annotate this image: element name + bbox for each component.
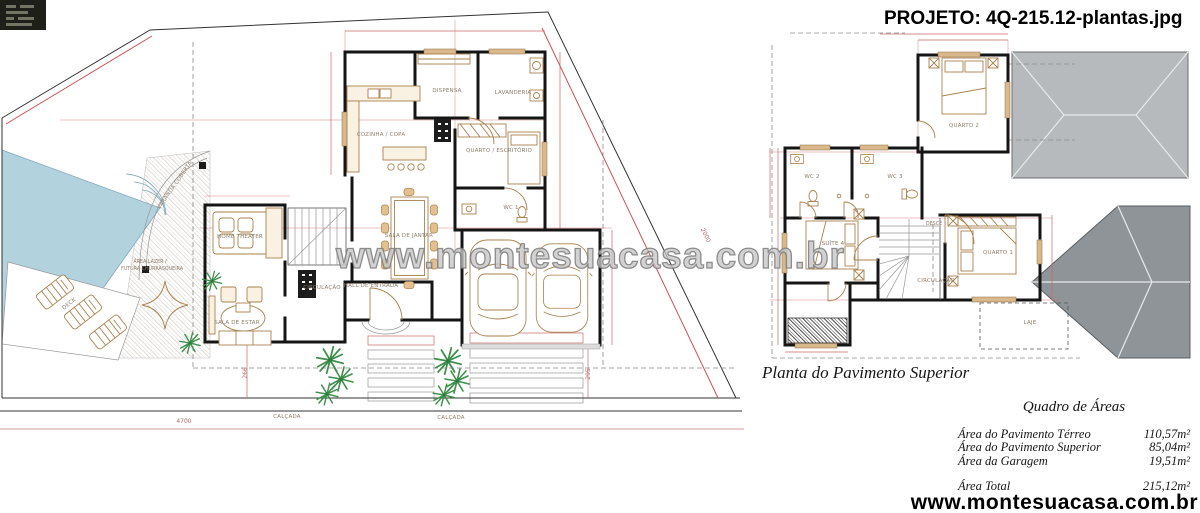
upper-floor-plan: QUARTO 2 WC 2 WC 3 SUÍTE 4 QUARTO 1 DESC…: [770, 33, 1190, 358]
room-label-cozinha: COZINHA / COPA: [357, 132, 406, 138]
room-label-area-lazer-1: ÁREA LAZER /: [133, 258, 167, 265]
room-label-sala-estar: SALA DE ESTAR: [214, 320, 260, 326]
area-label: Área da Garagem: [958, 455, 1048, 468]
site-logo-icon: [0, 0, 46, 30]
wc2-toilet: [808, 191, 818, 207]
roof-plan-bottom: [1032, 206, 1190, 358]
upper-floor-caption: Planta do Pavimento Superior: [762, 363, 969, 383]
entry-steps: [362, 321, 410, 334]
kitchen-counters: [347, 86, 426, 172]
stove: [434, 119, 451, 142]
terrace-paving: [118, 151, 210, 358]
room-label-home-theater: HOME THEATER: [217, 234, 263, 240]
upper-windows: [782, 52, 1042, 348]
label-calcada-2: CALÇADA: [437, 415, 465, 421]
home-theater-furniture: [213, 208, 282, 258]
ground-stairs: [288, 208, 346, 265]
room-label-quarto2: QUARTO 2: [949, 123, 979, 129]
wc3-toilet: [902, 189, 918, 199]
wc1-sink: [462, 204, 476, 214]
site-logo: [0, 0, 46, 30]
room-label-quarto-escritorio: QUARTO / ESCRITÓRIO: [466, 147, 533, 154]
areas-table-title: Quadro de Áreas: [958, 399, 1190, 416]
decor-panel: [298, 270, 316, 298]
garage-door: [462, 344, 600, 349]
office-bed: [458, 124, 540, 184]
area-label: Área do Pavimento Térreo: [958, 428, 1091, 441]
room-label-lavanderia: LAVANDERIA: [495, 90, 532, 96]
label-laje: LAJE: [1024, 320, 1037, 326]
area-label: Área do Pavimento Superior: [958, 441, 1101, 454]
room-label-area-lazer-2: FUTURA CHURRASQUEIRA: [121, 266, 184, 272]
areas-table: Quadro de Áreas Área do Pavimento Térreo…: [958, 399, 1190, 494]
room-label-sala-jantar: SALA DE JANTAR: [385, 233, 433, 239]
living-room-furniture: [209, 287, 271, 345]
label-calcada-1: CALÇADA: [273, 414, 301, 420]
room-label-wc2: WC 2: [804, 174, 819, 180]
wc2-sink: [791, 155, 804, 164]
areas-table-row: Área do Pavimento Térreo 110,57m²: [958, 428, 1190, 441]
label-desce: DESCE: [926, 221, 942, 227]
room-label-circulacao: CIRCULAÇÃO: [303, 284, 341, 291]
blueprint-page: DISPENSA LAVANDERIA COZINHA / COPA QUART…: [0, 0, 1200, 513]
areas-table-row: Área do Pavimento Superior 85,04m²: [958, 441, 1190, 454]
roof-plan-top: [1012, 52, 1188, 178]
area-value: 110,57m²: [1144, 428, 1190, 441]
balcony-pergola: [788, 318, 847, 343]
entry-door: [370, 288, 402, 320]
wc3-sink: [861, 155, 874, 164]
dim-boundary: 2000: [699, 227, 712, 244]
ground-floor-plan: DISPENSA LAVANDERIA COZINHA / COPA QUART…: [0, 12, 744, 429]
quarto2-bed: [929, 58, 998, 114]
floor-drain: [837, 194, 841, 198]
dim-left: 266: [242, 367, 249, 379]
dim-right: 295: [585, 368, 592, 380]
room-label-wc1: WC 1: [503, 205, 518, 211]
room-label-hall: HALL DE ENTRADA: [344, 283, 398, 289]
car-2: [532, 244, 593, 332]
area-value: 19,51m²: [1149, 455, 1190, 468]
car-1: [465, 240, 531, 336]
room-label-suite: SUÍTE 4: [822, 240, 845, 247]
pantry-shelves: [418, 54, 470, 64]
areas-table-row: Área da Garagem 19,51m²: [958, 455, 1190, 468]
bottom-watermark: www.montesuacasa.com.br: [911, 491, 1198, 513]
column: [199, 162, 206, 169]
project-title: PROJETO: 4Q-215.12-plantas.jpg: [884, 8, 1182, 30]
laje-slab: [980, 303, 1068, 349]
dim-frontage: 4700: [176, 418, 191, 425]
upper-stairs: [879, 218, 940, 300]
room-label-dispensa: DISPENSA: [432, 88, 461, 94]
room-label-quarto1: QUARTO 1: [983, 250, 1013, 256]
area-value: 85,04m²: [1149, 441, 1190, 454]
laundry-appliances: [530, 58, 543, 101]
room-label-circulacao-upper: CIRCULAÇÃO: [917, 277, 955, 284]
floor-drain: [865, 194, 869, 198]
room-label-wc3: WC 3: [887, 174, 903, 180]
